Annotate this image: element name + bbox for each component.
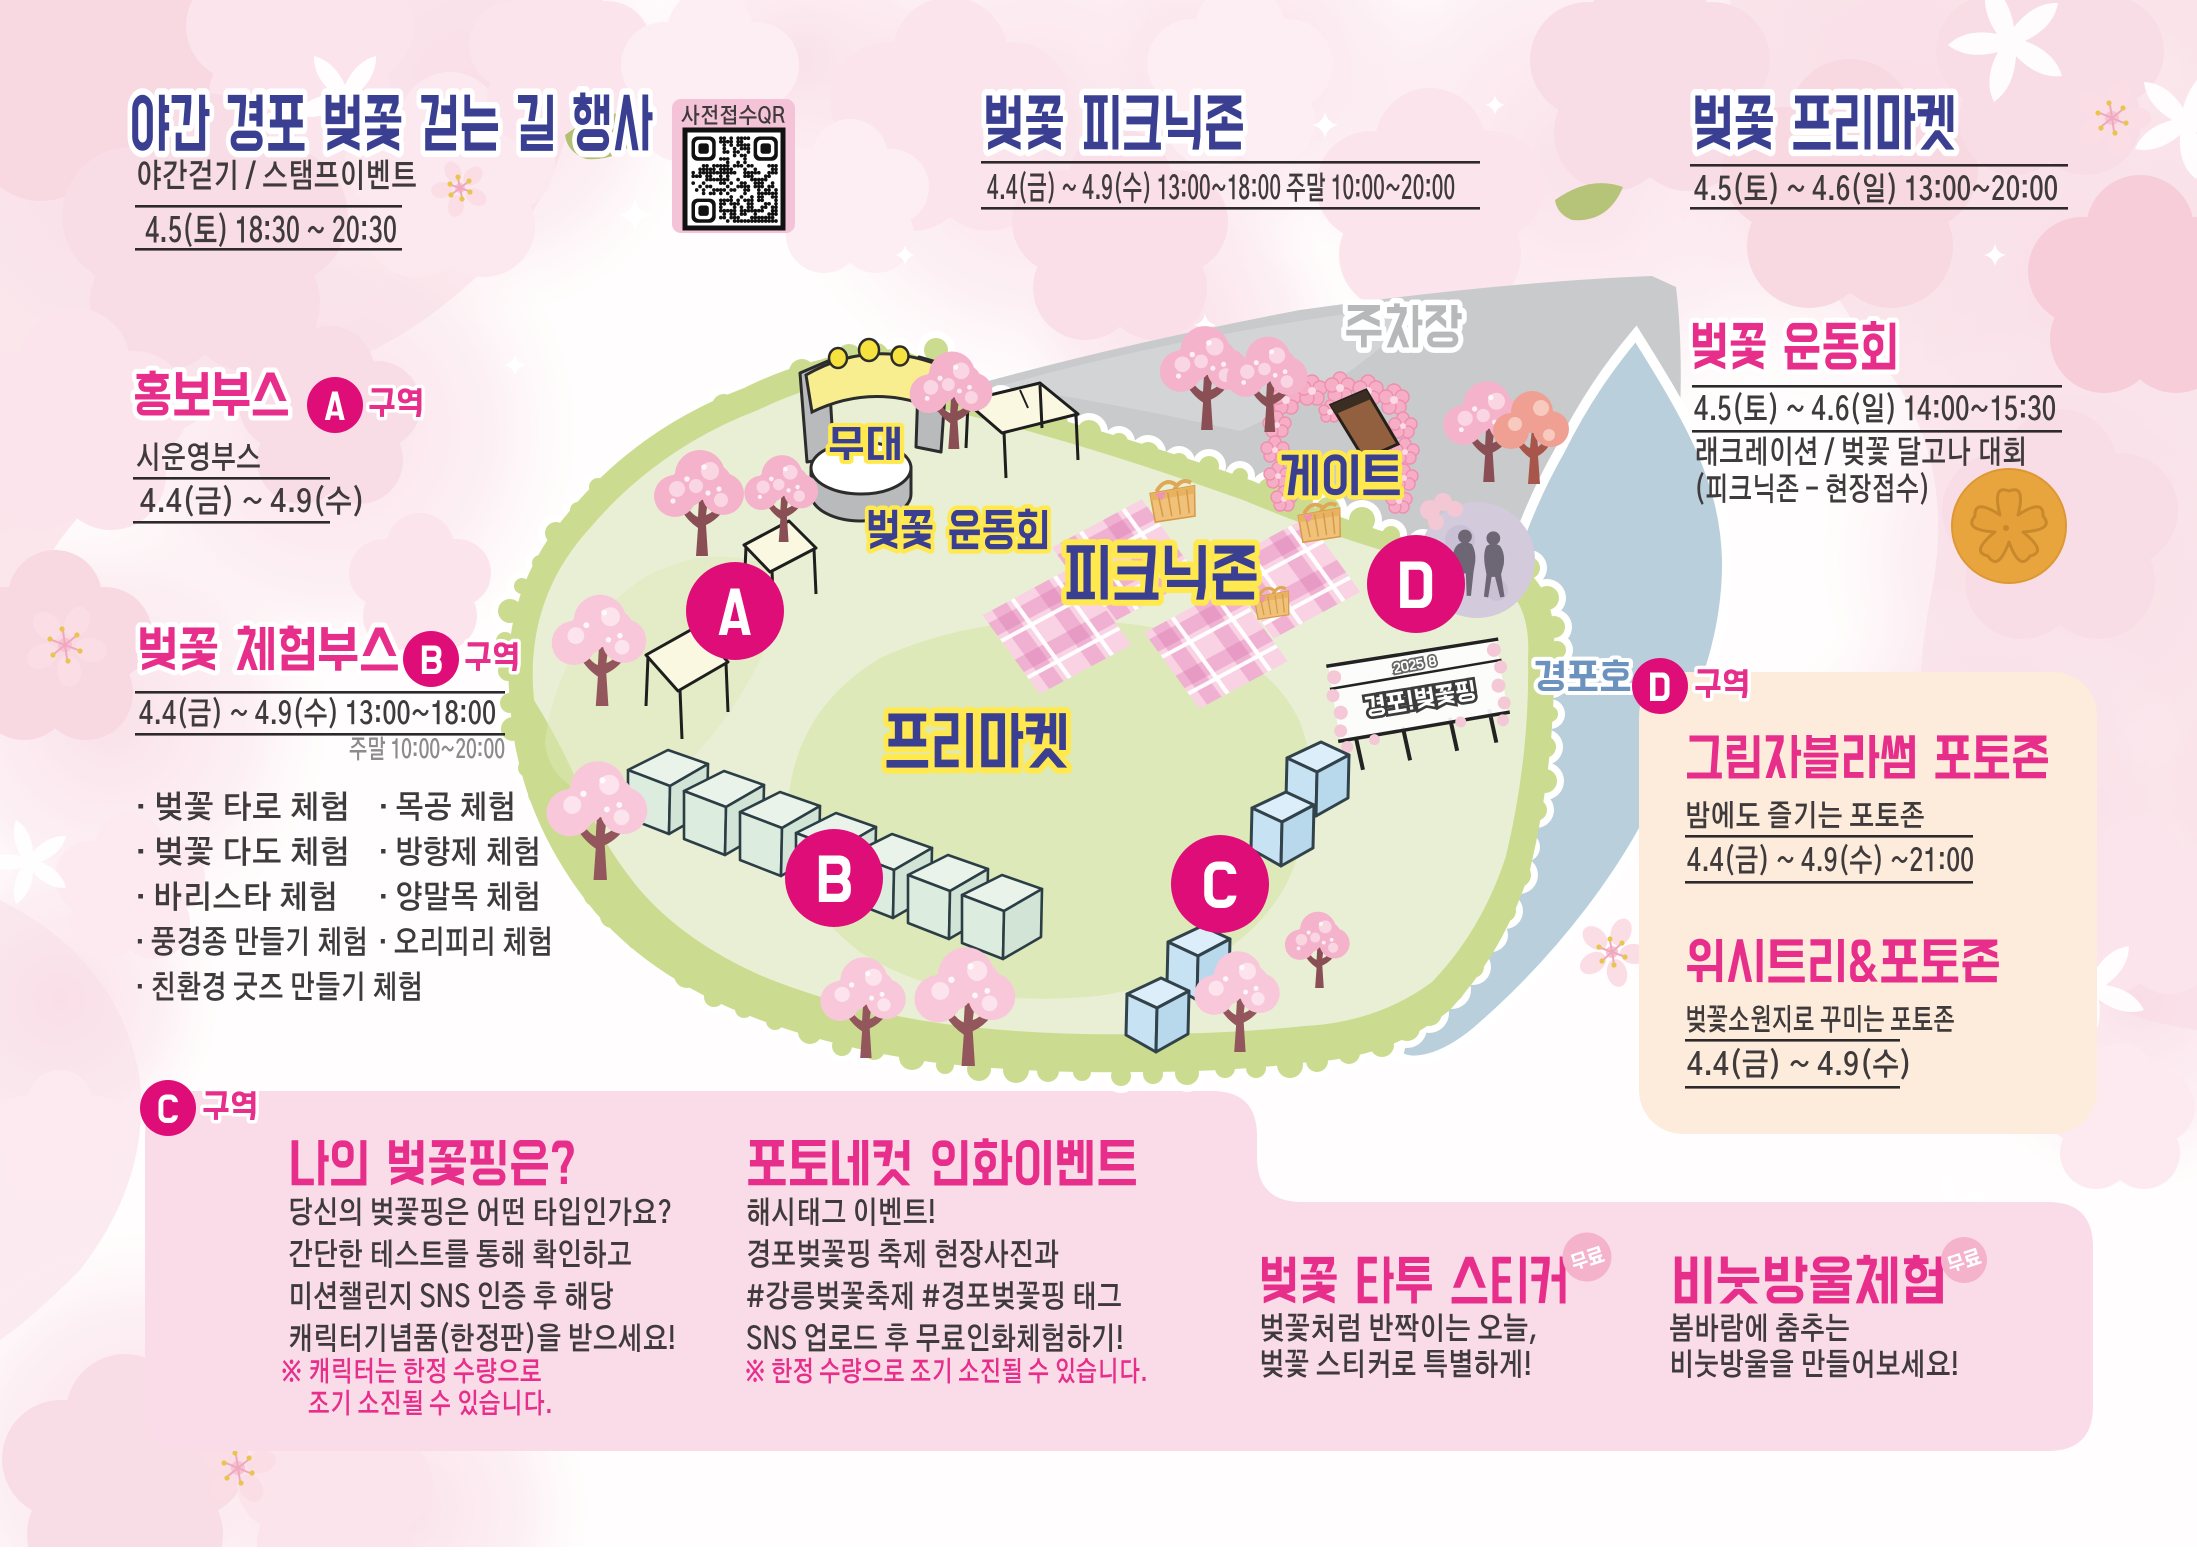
svg-text:비눗방울체험: 비눗방울체험 xyxy=(1669,1253,1947,1315)
svg-text:B: B xyxy=(816,848,852,916)
svg-text:나의 벚꽃핑은?: 나의 벚꽃핑은? xyxy=(288,1136,575,1196)
svg-text:당신의 벚꽃핑은 어떤 타입인가요?: 당신의 벚꽃핑은 어떤 타입인가요? xyxy=(288,1197,672,1230)
svg-text:벚꽃 피크닉존: 벚꽃 피크닉존 xyxy=(983,91,1245,163)
svg-text:벚꽃 프리마켓: 벚꽃 프리마켓 xyxy=(1692,91,1957,163)
svg-text:· 방향제 체험: · 방향제 체험 xyxy=(378,836,541,870)
svg-text:C: C xyxy=(156,1090,179,1132)
svg-text:· 목공 체험: · 목공 체험 xyxy=(378,791,516,825)
svg-text:(피크닉존 - 현장접수): (피크닉존 - 현장접수) xyxy=(1694,471,1930,507)
svg-text:봄바람에 춤추는: 봄바람에 춤추는 xyxy=(1669,1313,1850,1346)
svg-text:프리마켓: 프리마켓 xyxy=(884,709,1070,781)
svg-text:SNS 업로드 후 무료인화체험하기!: SNS 업로드 후 무료인화체험하기! xyxy=(746,1323,1124,1356)
svg-text:· 풍경종 만들기 체험: · 풍경종 만들기 체험 xyxy=(135,926,368,960)
svg-text:#강릉벚꽃축제 #경포벚꽃핑 태그: #강릉벚꽃축제 #경포벚꽃핑 태그 xyxy=(746,1281,1122,1314)
svg-text:구역: 구역 xyxy=(368,386,424,424)
svg-text:구역: 구역 xyxy=(464,640,520,678)
svg-text:피크닉존: 피크닉존 xyxy=(1063,541,1259,613)
svg-text:비눗방울을 만들어보세요!: 비눗방울을 만들어보세요! xyxy=(1669,1349,1959,1382)
svg-text:벚꽃소원지로 꾸미는 포토존: 벚꽃소원지로 꾸미는 포토존 xyxy=(1685,1005,1955,1037)
svg-text:4.4(금) ~ 4.9(수): 4.4(금) ~ 4.9(수) xyxy=(140,484,365,519)
svg-text:D: D xyxy=(1397,554,1436,622)
svg-text:구역: 구역 xyxy=(1694,667,1750,705)
svg-text:미션챌린지 SNS 인증 후 해당: 미션챌린지 SNS 인증 후 해당 xyxy=(288,1281,614,1314)
svg-text:시운영부스: 시운영부스 xyxy=(136,442,261,475)
svg-text:주말 10:00~20:00: 주말 10:00~20:00 xyxy=(349,736,505,764)
svg-text:벚꽃처럼 반짝이는 오늘,: 벚꽃처럼 반짝이는 오늘, xyxy=(1259,1313,1538,1346)
svg-text:4.4(금) ~ 4.9(수) ~21:00: 4.4(금) ~ 4.9(수) ~21:00 xyxy=(1687,843,1974,878)
svg-text:홍보부스: 홍보부스 xyxy=(133,369,290,426)
svg-text:· 벚꽃 다도 체험: · 벚꽃 다도 체험 xyxy=(135,836,350,870)
svg-text:해시태그 이벤트!: 해시태그 이벤트! xyxy=(746,1197,936,1230)
svg-text:※ 캐릭터는 한정 수량으로: ※ 캐릭터는 한정 수량으로 xyxy=(280,1357,542,1387)
svg-text:4.4(금) ~ 4.9(수) 13:00~18:00: 4.4(금) ~ 4.9(수) 13:00~18:00 xyxy=(139,696,496,731)
svg-text:B: B xyxy=(420,641,442,683)
svg-text:A: A xyxy=(324,387,346,429)
svg-text:밤에도 즐기는 포토존: 밤에도 즐기는 포토존 xyxy=(1685,801,1925,833)
svg-text:경포호: 경포호 xyxy=(1534,658,1632,698)
svg-text:4.5(토) ~ 4.6(일) 14:00~15:30: 4.5(토) ~ 4.6(일) 14:00~15:30 xyxy=(1694,391,2056,427)
svg-text:래크레이션 / 벚꽃 달고나 대회: 래크레이션 / 벚꽃 달고나 대회 xyxy=(1694,436,2027,470)
svg-text:벚꽃 타투 스티커: 벚꽃 타투 스티커 xyxy=(1259,1253,1569,1315)
svg-text:4.5(토) ~ 4.6(일) 13:00~20:00: 4.5(토) ~ 4.6(일) 13:00~20:00 xyxy=(1694,171,2058,207)
svg-text:캐릭터기념품(한정판)을 받으세요!: 캐릭터기념품(한정판)을 받으세요! xyxy=(288,1321,676,1356)
svg-text:D: D xyxy=(1648,668,1672,710)
svg-text:주차장: 주차장 xyxy=(1344,302,1462,358)
svg-text:· 벚꽃 타로 체험: · 벚꽃 타로 체험 xyxy=(135,791,350,825)
svg-text:· 바리스타 체험: · 바리스타 체험 xyxy=(135,881,338,915)
svg-text:※ 한정 수량으로 조기 소진될 수 있습니다.: ※ 한정 수량으로 조기 소진될 수 있습니다. xyxy=(744,1357,1148,1387)
svg-text:벚꽃 운동회: 벚꽃 운동회 xyxy=(866,507,1050,559)
svg-text:C: C xyxy=(1201,854,1238,922)
svg-text:4.5(토) 18:30 ~ 20:30: 4.5(토) 18:30 ~ 20:30 xyxy=(145,212,397,249)
svg-text:야간걷기 / 스탬프이벤트: 야간걷기 / 스탬프이벤트 xyxy=(136,159,417,194)
svg-text:무대: 무대 xyxy=(828,424,902,468)
svg-text:벚꽃 체험부스: 벚꽃 체험부스 xyxy=(137,624,400,681)
svg-text:· 친환경 굿즈 만들기 체험: · 친환경 굿즈 만들기 체험 xyxy=(135,971,423,1005)
svg-text:· 양말목 체험: · 양말목 체험 xyxy=(378,881,541,915)
svg-text:그림자블라썸 포토존: 그림자블라썸 포토존 xyxy=(1685,732,2050,789)
svg-text:A: A xyxy=(717,581,753,649)
svg-text:게이트: 게이트 xyxy=(1280,451,1402,505)
svg-text:야간 경포 벚꽃 걷는 길 행사: 야간 경포 벚꽃 걷는 길 행사 xyxy=(129,90,653,164)
svg-text:벚꽃 스티커로 특별하게!: 벚꽃 스티커로 특별하게! xyxy=(1259,1349,1532,1382)
svg-text:간단한 테스트를 통해 확인하고: 간단한 테스트를 통해 확인하고 xyxy=(288,1239,632,1272)
svg-text:포토네컷 인화이벤트: 포토네컷 인화이벤트 xyxy=(746,1136,1138,1196)
svg-text:4.4(금) ~ 4.9(수): 4.4(금) ~ 4.9(수) xyxy=(1687,1047,1912,1082)
svg-text:4.4(금) ~ 4.9(수) 13:00~18:00: 4.4(금) ~ 4.9(수) 13:00~18:00 주말 10:00~20:… xyxy=(987,170,1455,206)
svg-text:· 오리피리 체험: · 오리피리 체험 xyxy=(378,926,553,960)
svg-text:위시트리&포토존: 위시트리&포토존 xyxy=(1685,936,2001,993)
svg-text:사전접수QR: 사전접수QR xyxy=(681,104,785,128)
svg-text:벚꽃 운동회: 벚꽃 운동회 xyxy=(1690,319,1899,381)
svg-text:구역: 구역 xyxy=(202,1089,258,1127)
svg-text:조기 소진될 수 있습니다.: 조기 소진될 수 있습니다. xyxy=(308,1389,553,1419)
svg-text:경포벚꽃핑 축제 현장사진과: 경포벚꽃핑 축제 현장사진과 xyxy=(746,1239,1059,1272)
